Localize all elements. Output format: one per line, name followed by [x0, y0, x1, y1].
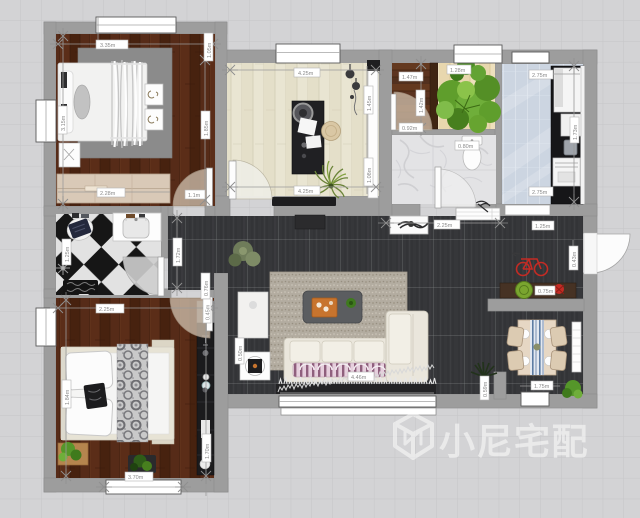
svg-text:1.28m: 1.28m — [450, 68, 466, 74]
svg-text:1.05m: 1.05m — [207, 42, 213, 58]
svg-text:0.75m: 0.75m — [538, 289, 554, 295]
svg-text:0.43m: 0.43m — [572, 251, 578, 267]
svg-text:1.85m: 1.85m — [204, 120, 210, 136]
svg-text:1.42m: 1.42m — [419, 97, 425, 113]
svg-text:1.72m: 1.72m — [176, 247, 182, 263]
svg-text:2.25m: 2.25m — [437, 223, 453, 229]
svg-text:1.75m: 1.75m — [534, 384, 550, 390]
svg-text:0.45m: 0.45m — [206, 304, 212, 320]
svg-text:4.25m: 4.25m — [298, 189, 314, 195]
svg-text:1.1m: 1.1m — [188, 193, 201, 199]
svg-text:1.73m: 1.73m — [573, 124, 579, 140]
svg-text:0.59m: 0.59m — [483, 381, 489, 397]
svg-text:1.25m: 1.25m — [65, 246, 71, 262]
svg-text:4.25m: 4.25m — [298, 71, 314, 77]
svg-text:3.70m: 3.70m — [128, 475, 144, 481]
svg-text:2.25m: 2.25m — [99, 307, 115, 313]
svg-text:2.75m: 2.75m — [532, 190, 548, 196]
svg-text:1.08m: 1.08m — [367, 167, 373, 183]
svg-text:0.92m: 0.92m — [402, 126, 418, 132]
svg-text:1.45m: 1.45m — [367, 95, 373, 111]
svg-text:2.28m: 2.28m — [100, 191, 116, 197]
svg-text:0.76m: 0.76m — [204, 280, 210, 296]
svg-text:4.46m: 4.46m — [351, 375, 367, 381]
svg-text:0.50m: 0.50m — [238, 345, 244, 361]
svg-text:1.84m: 1.84m — [65, 389, 71, 405]
svg-text:1.47m: 1.47m — [402, 75, 418, 81]
svg-text:0.80m: 0.80m — [458, 144, 474, 150]
svg-text:1.25m: 1.25m — [535, 224, 551, 230]
svg-text:1.70m: 1.70m — [205, 443, 211, 459]
svg-text:2.75m: 2.75m — [532, 73, 548, 79]
svg-text:3.15m: 3.15m — [61, 115, 67, 131]
svg-text:小尼宅配: 小尼宅配 — [439, 421, 589, 462]
svg-text:3.35m: 3.35m — [100, 43, 116, 49]
